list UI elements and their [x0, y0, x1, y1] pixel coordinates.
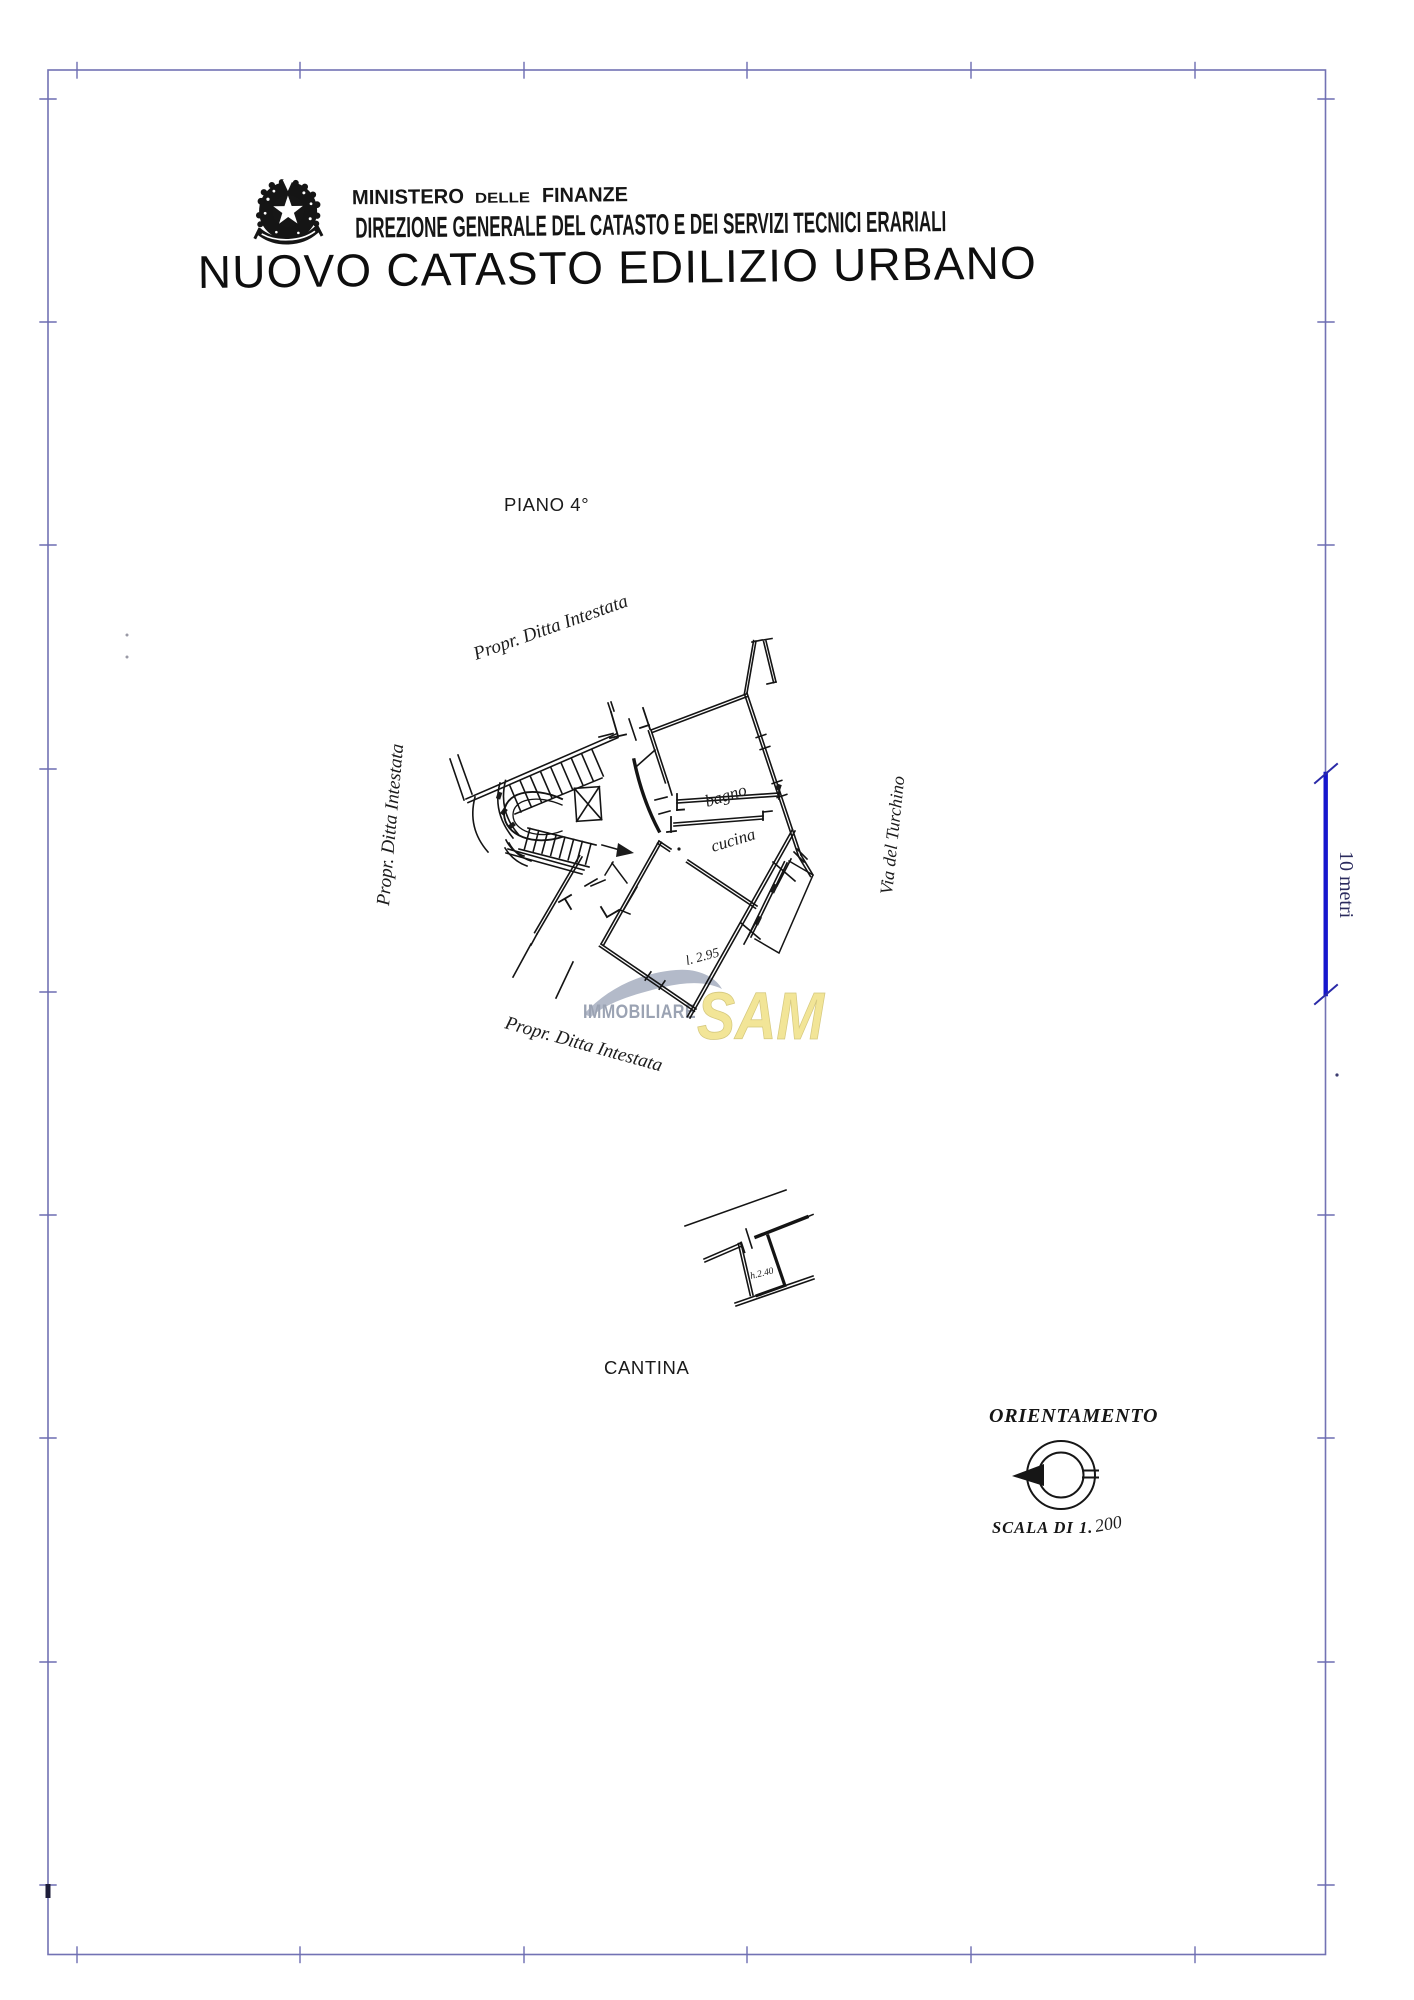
svg-text:PIANO 4°: PIANO 4° — [504, 494, 589, 515]
svg-text:MINISTERO: MINISTERO — [352, 185, 464, 209]
svg-text:CANTINA: CANTINA — [604, 1357, 689, 1378]
svg-text:DELLE: DELLE — [475, 190, 531, 207]
svg-text:IMMOBILIARE: IMMOBILIARE — [583, 1001, 696, 1023]
svg-text:10 metri: 10 metri — [1335, 851, 1357, 919]
svg-text:SCALA DI 1.: SCALA DI 1. — [992, 1518, 1093, 1537]
svg-text:ORIENTAMENTO: ORIENTAMENTO — [989, 1405, 1158, 1427]
svg-text:FINANZE: FINANZE — [542, 183, 628, 207]
svg-text:SAM: SAM — [697, 979, 825, 1054]
